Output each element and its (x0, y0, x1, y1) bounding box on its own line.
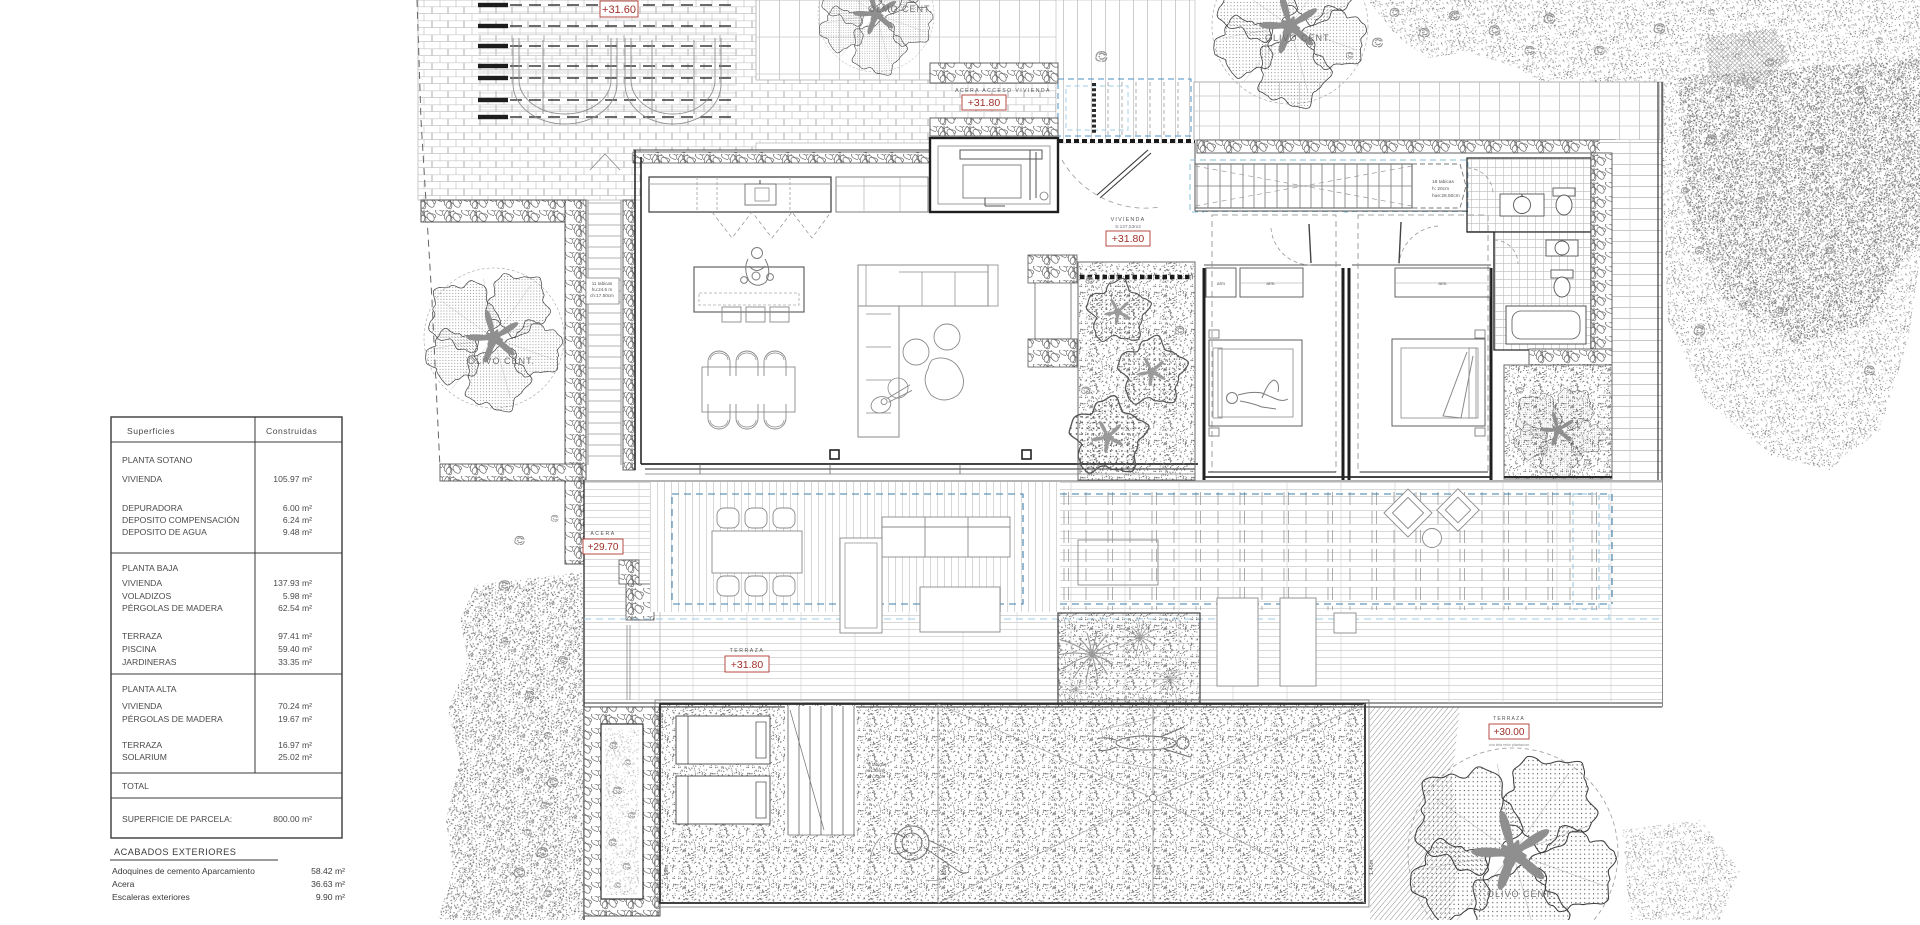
svg-text:C A S A L O N: C A S A L O N (984, 899, 1046, 905)
svg-text:hu:24.6 m: hu:24.6 m (592, 287, 613, 292)
svg-text:VIVIENDA: VIVIENDA (122, 474, 162, 484)
svg-text:70.24 m²: 70.24 m² (278, 701, 312, 711)
svg-text:TOTAL: TOTAL (122, 781, 149, 791)
svg-text:16.97 m²: 16.97 m² (278, 740, 312, 750)
svg-text:62.54 m²: 62.54 m² (278, 603, 312, 613)
svg-text:1.50m: 1.50m (1156, 864, 1162, 880)
svg-text:33.35 m²: 33.35 m² (278, 657, 312, 667)
svg-text:9.90 m²: 9.90 m² (316, 892, 345, 902)
svg-text:ACABADOS EXTERIORES: ACABADOS EXTERIORES (114, 847, 236, 857)
svg-text:ACERA ACCESO VIVIENDA: ACERA ACCESO VIVIENDA (955, 88, 1051, 94)
svg-text:0.20m: 0.20m (659, 712, 665, 728)
svg-text:VIVIENDA: VIVIENDA (122, 578, 162, 588)
svg-text:PÉRGOLAS DE MADERA: PÉRGOLAS DE MADERA (122, 714, 223, 724)
svg-text:11 tabicas: 11 tabicas (592, 281, 613, 286)
svg-text:+31.80: +31.80 (1112, 233, 1145, 245)
svg-text:ch:20cm: ch:20cm (868, 774, 886, 779)
svg-text:+31.60: +31.60 (602, 4, 636, 16)
svg-text:PLANTA BAJA: PLANTA BAJA (122, 563, 178, 573)
svg-text:S:137,53m2: S:137,53m2 (1115, 224, 1141, 230)
svg-text:9.48 m²: 9.48 m² (283, 527, 312, 537)
svg-text:OLIVO CENT.: OLIVO CENT. (1265, 33, 1332, 43)
svg-text:59.40 m²: 59.40 m² (278, 644, 312, 654)
svg-text:JARDINERAS: JARDINERAS (122, 657, 177, 667)
svg-text:SUPERFICIE DE PARCELA:: SUPERFICIE DE PARCELA: (122, 814, 232, 824)
svg-text:SOLARIUM: SOLARIUM (122, 752, 167, 762)
svg-text:Construidas: Construidas (266, 426, 317, 436)
svg-text:DEPOSITO DE AGUA: DEPOSITO DE AGUA (122, 527, 207, 537)
svg-text:arm.: arm. (1266, 281, 1275, 286)
svg-text:PISCINA: PISCINA (122, 644, 157, 654)
svg-text:58.42 m²: 58.42 m² (311, 866, 345, 876)
svg-text:+29.70: +29.70 (588, 542, 619, 553)
svg-text:137.93 m²: 137.93 m² (273, 578, 312, 588)
svg-text:TERRAZA: TERRAZA (1493, 716, 1525, 722)
svg-text:Adoquines de cemento Aparcamie: Adoquines de cemento Aparcamiento (112, 866, 255, 876)
svg-text:18 tabicas: 18 tabicas (1432, 179, 1454, 185)
svg-text:VOLADIZOS: VOLADIZOS (122, 591, 171, 601)
svg-text:OLIVO CENT.: OLIVO CENT. (1487, 889, 1554, 899)
svg-text:Escaleras exteriores: Escaleras exteriores (112, 892, 190, 902)
svg-text:Acera: Acera (112, 879, 135, 889)
svg-text:Superficies: Superficies (127, 426, 175, 436)
svg-text:ACERA: ACERA (590, 531, 615, 537)
svg-text:TERRAZA: TERRAZA (730, 648, 765, 654)
svg-text:hue:28.50cm: hue:28.50cm (1432, 193, 1460, 199)
svg-text:VIVIENDA: VIVIENDA (1111, 217, 1146, 223)
svg-text:arm: arm (1217, 281, 1225, 286)
svg-text:OLIVO CENT.: OLIVO CENT. (468, 356, 535, 366)
svg-text:arm.: arm. (1438, 281, 1447, 286)
svg-text:PÉRGOLAS DE MADERA: PÉRGOLAS DE MADERA (122, 603, 223, 613)
svg-text:TERRAZA: TERRAZA (122, 631, 162, 641)
svg-text:ch:17.50cm: ch:17.50cm (590, 293, 614, 298)
svg-text:6.00 m²: 6.00 m² (283, 503, 312, 513)
svg-text:VIVIENDA: VIVIENDA (122, 701, 162, 711)
svg-text:PLANTA ALTA: PLANTA ALTA (122, 684, 177, 694)
svg-text:+31.80: +31.80 (968, 97, 1001, 109)
svg-text:1.20m: 1.20m (942, 864, 948, 880)
svg-text:105.97 m²: 105.97 m² (273, 474, 312, 484)
svg-text:OLMO CENT.: OLMO CENT. (868, 4, 933, 14)
svg-text:6 tabicas: 6 tabicas (868, 762, 887, 767)
svg-text:97.41 m²: 97.41 m² (278, 631, 312, 641)
svg-text:DEPOSITO COMPENSACIÓN: DEPOSITO COMPENSACIÓN (122, 515, 239, 525)
svg-text:m:30cm: m:30cm (868, 768, 885, 773)
svg-text:TERRAZA: TERRAZA (122, 740, 162, 750)
svg-text:25.02 m²: 25.02 m² (278, 752, 312, 762)
svg-text:con tela refor plantacion: con tela refor plantacion (1489, 743, 1530, 747)
svg-text:1.20m: 1.20m (664, 864, 670, 880)
svg-text:36.63 m²: 36.63 m² (311, 879, 345, 889)
svg-text:PLANTA SOTANO: PLANTA SOTANO (122, 455, 193, 465)
svg-text:800.00 m²: 800.00 m² (273, 814, 312, 824)
svg-text:+30.00: +30.00 (1494, 727, 1525, 738)
svg-text:h: 20cm: h: 20cm (1432, 186, 1449, 192)
svg-text:6.24 m²: 6.24 m² (283, 515, 312, 525)
svg-text:19.67 m²: 19.67 m² (278, 714, 312, 724)
svg-text:5.98 m²: 5.98 m² (283, 591, 312, 601)
svg-text:DEPURADORA: DEPURADORA (122, 503, 183, 513)
svg-text:+31.80: +31.80 (731, 659, 764, 671)
